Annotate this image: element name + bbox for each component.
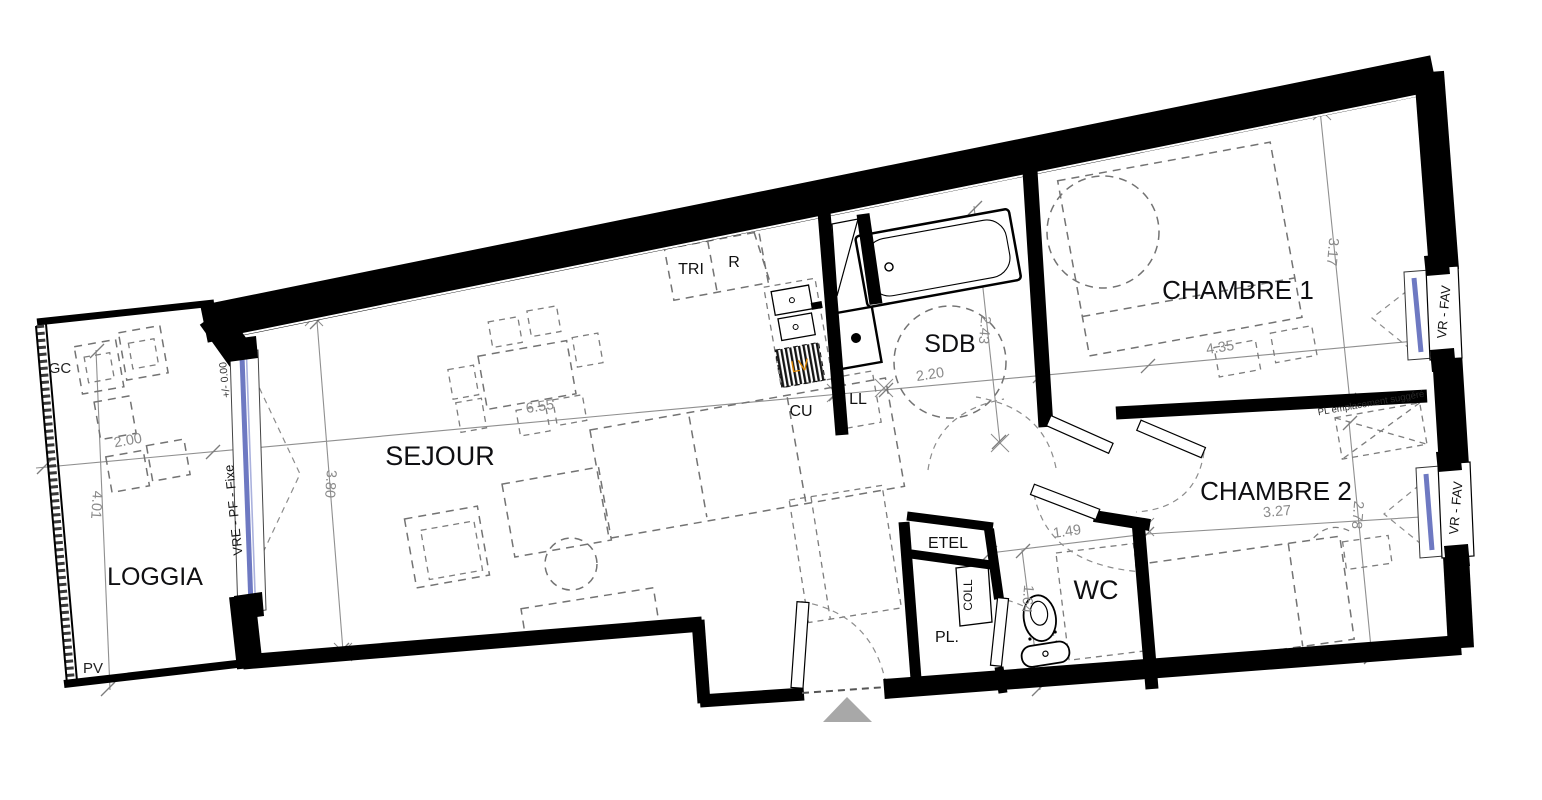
dining-set	[440, 300, 613, 447]
chambre1-bed	[1058, 141, 1318, 399]
label-cu: CU	[789, 403, 812, 420]
closet-right-wall-upper	[989, 529, 999, 599]
round-table	[545, 538, 597, 590]
room-label-chambre2: CHAMBRE 2	[1200, 476, 1352, 506]
sdb-door-arc	[928, 399, 1004, 470]
room-label-sdb: SDB	[924, 330, 975, 358]
sdb-door-leaf	[1046, 416, 1113, 454]
bottom-right-wall	[884, 645, 1461, 689]
room-label-chambre1: CHAMBRE 1	[1162, 275, 1314, 305]
dim-loggia-width: 2.00	[113, 431, 144, 452]
loggia-rail-hatch	[40, 325, 71, 683]
chambre1-door-arc	[1136, 452, 1204, 512]
entry-bottom-wall	[700, 694, 804, 701]
window-right-top	[1404, 254, 1462, 372]
closet-right-wall-lower	[999, 667, 1003, 693]
room-label-loggia: LOGGIA	[107, 563, 203, 591]
window-right-bottom	[1416, 450, 1474, 568]
dim-wc-width: 1.49	[1052, 522, 1082, 542]
right-wall-2	[1447, 354, 1454, 466]
entrance-door-arc	[798, 601, 886, 684]
entrance-door-leaf	[791, 602, 809, 689]
label-lv: LV	[790, 356, 811, 376]
room-label-wc: WC	[1074, 575, 1119, 605]
room-label-sejour: SEJOUR	[385, 441, 495, 471]
closet-left-wall	[904, 522, 917, 692]
right-wall-3	[1456, 556, 1461, 648]
label-tri: TRI	[678, 261, 704, 278]
right-wall-1	[1429, 72, 1444, 270]
loggia-furniture	[73, 325, 191, 495]
etel-top-wall	[907, 516, 993, 527]
dim-loggia-depth: 4.01	[87, 490, 105, 519]
sdb-chambre1-wall	[1028, 139, 1046, 427]
dim-chambre1-depth: 3.17	[1323, 237, 1341, 267]
dim-chambre1-width: 4.35	[1205, 338, 1235, 358]
label-pl: PL.	[935, 629, 959, 646]
floor-plan-page: LOGGIA SEJOUR SDB CHAMBRE 1 CHAMBRE 2 WC…	[0, 0, 1542, 800]
chambre1-door-leaf	[1137, 420, 1206, 457]
dim-sdb-depth: 2.43	[975, 315, 993, 345]
kitchen-sink	[771, 283, 827, 341]
label-coll: COLL	[961, 579, 975, 611]
label-ll: LL	[849, 391, 867, 408]
entry-jog-wall	[698, 620, 704, 703]
loggia-top-wall	[37, 303, 214, 322]
chambre2-door-leaf	[1030, 484, 1099, 519]
label-r: R	[728, 254, 740, 271]
armchair	[404, 506, 489, 588]
sejour-bottom-wall	[243, 624, 702, 662]
dim-wc-depth: 1.64	[1018, 584, 1036, 614]
wc-door-leaf	[990, 598, 1008, 667]
dim-chambre2-depth: 2.78	[1348, 500, 1366, 530]
dim-sdb-width: 2.20	[915, 365, 945, 385]
label-etel: ETEL	[928, 535, 968, 552]
chambre1-circle	[1047, 176, 1159, 288]
label-gc: GC	[49, 360, 72, 377]
kitchen-zone-edge	[754, 232, 770, 282]
label-pv: PV	[83, 660, 103, 677]
dim-sejour-depth: 3.80	[321, 469, 339, 498]
etel-bottom-wall	[911, 554, 991, 565]
dim-sejour-width: 6.55	[525, 397, 555, 417]
entrance-threshold	[802, 687, 887, 693]
floor-plan: LOGGIA SEJOUR SDB CHAMBRE 1 CHAMBRE 2 WC…	[0, 0, 1542, 800]
entrance-arrow	[823, 697, 872, 722]
dim-chambre2-width: 3.27	[1262, 503, 1292, 521]
